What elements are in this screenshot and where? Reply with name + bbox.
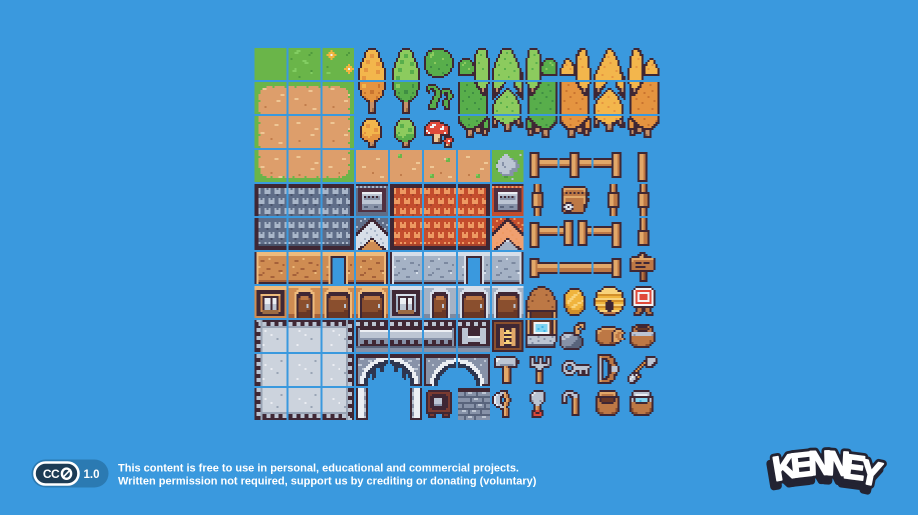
svg-text:Written permission not require: Written permission not required, support… bbox=[118, 475, 537, 487]
svg-text:CC: CC bbox=[43, 467, 60, 481]
svg-text:This content is free to use in: This content is free to use in personal,… bbox=[118, 463, 519, 475]
svg-text:1.0: 1.0 bbox=[84, 469, 100, 481]
